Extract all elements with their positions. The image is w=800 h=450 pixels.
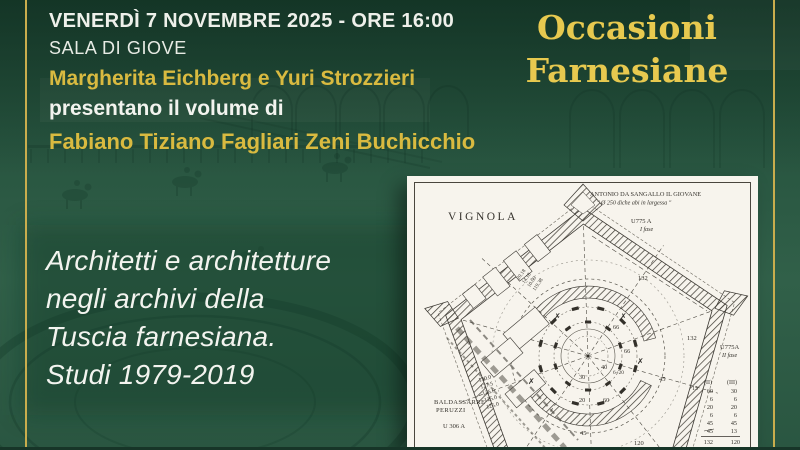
- label-sangallo: ANTONIO DA SANGALLO IL GIOVANE: [590, 191, 701, 198]
- svg-text:13: 13: [731, 428, 737, 435]
- caprarola-plan-drawing: ✗ ✗ ✗ ✗ VIGNOLA ANTONIO DA SANGALLO IL G…: [407, 176, 758, 450]
- svg-text:132: 132: [687, 335, 697, 342]
- svg-text:6+20: 6+20: [613, 370, 624, 376]
- label-u775-i: U775 A: [631, 218, 652, 225]
- svg-text:✗: ✗: [528, 377, 535, 386]
- event-poster: VENERDÌ 7 NOVEMBRE 2025 - ORE 16:00 SALA…: [0, 0, 800, 450]
- label-peruzzi-2: PERUZZI: [436, 407, 466, 414]
- svg-text:120: 120: [731, 439, 740, 446]
- svg-text:45: 45: [580, 430, 587, 437]
- svg-text:15: 15: [692, 386, 698, 392]
- event-datetime: VENERDÌ 7 NOVEMBRE 2025 - ORE 16:00: [49, 7, 519, 36]
- svg-text:40: 40: [601, 364, 607, 371]
- svg-text:20: 20: [579, 397, 585, 404]
- svg-text:60: 60: [603, 397, 609, 404]
- svg-text:6: 6: [710, 396, 713, 403]
- label-u775-ii-phase: II fase: [721, 352, 737, 359]
- book-author: Fabiano Tiziano Fagliari Zeni Buchicchio: [49, 126, 519, 158]
- svg-text:132: 132: [704, 439, 713, 446]
- right-gold-rule: [773, 0, 775, 450]
- book-title-line-4: Studi 1979-2019: [46, 356, 331, 394]
- event-header: VENERDÌ 7 NOVEMBRE 2025 - ORE 16:00 SALA…: [49, 7, 519, 158]
- svg-text:66: 66: [624, 348, 630, 355]
- label-u775-i-phase: I fase: [639, 226, 654, 233]
- book-title: Architetti e architetture negli archivi …: [46, 242, 331, 394]
- book-plate-panel: ✗ ✗ ✗ ✗ VIGNOLA ANTONIO DA SANGALLO IL G…: [407, 176, 758, 450]
- svg-text:(II): (II): [704, 379, 712, 386]
- svg-text:60: 60: [707, 388, 713, 395]
- book-title-line-2: negli archivi della: [46, 280, 331, 318]
- label-peruzzi-1: BALDASSARRE: [434, 399, 485, 406]
- brand-line-2: Farnesiane: [482, 49, 772, 92]
- label-vignola: VIGNOLA: [448, 211, 518, 223]
- svg-text:✗: ✗: [637, 357, 644, 366]
- svg-text:66: 66: [613, 324, 619, 331]
- brand-line-1: Occasioni: [482, 6, 772, 49]
- svg-text:45: 45: [659, 376, 666, 383]
- label-sangallo-note: " Ø 250 diche abi in largessa ": [597, 201, 672, 207]
- svg-text:6: 6: [710, 412, 713, 419]
- svg-text:120: 120: [634, 440, 644, 447]
- left-gold-rule: [25, 0, 27, 450]
- event-presenters: Margherita Eichberg e Yuri Strozzieri: [49, 64, 519, 94]
- svg-text:6: 6: [734, 396, 737, 403]
- svg-text:✗: ✗: [554, 312, 561, 321]
- book-title-line-3: Tuscia farnesiana.: [46, 318, 331, 356]
- svg-text:45: 45: [731, 420, 737, 427]
- svg-text:20: 20: [707, 404, 713, 411]
- svg-text:30: 30: [731, 388, 737, 395]
- svg-text:45: 45: [707, 420, 713, 427]
- svg-text:6: 6: [734, 412, 737, 419]
- svg-text:✗: ✗: [620, 312, 627, 321]
- svg-text:132: 132: [638, 275, 648, 282]
- svg-text:(III): (III): [727, 379, 737, 386]
- label-u306: U 306 A: [443, 423, 465, 430]
- label-u775-ii: U775A: [720, 344, 739, 351]
- book-title-line-1: Architetti e architetture: [46, 242, 331, 280]
- svg-text:45: 45: [707, 428, 713, 435]
- event-intro-line: presentano il volume di: [49, 94, 519, 124]
- event-venue: SALA DI GIOVE: [49, 36, 519, 61]
- svg-text:30: 30: [579, 374, 585, 381]
- svg-text:20: 20: [731, 404, 737, 411]
- series-brand: Occasioni Farnesiane: [482, 6, 772, 92]
